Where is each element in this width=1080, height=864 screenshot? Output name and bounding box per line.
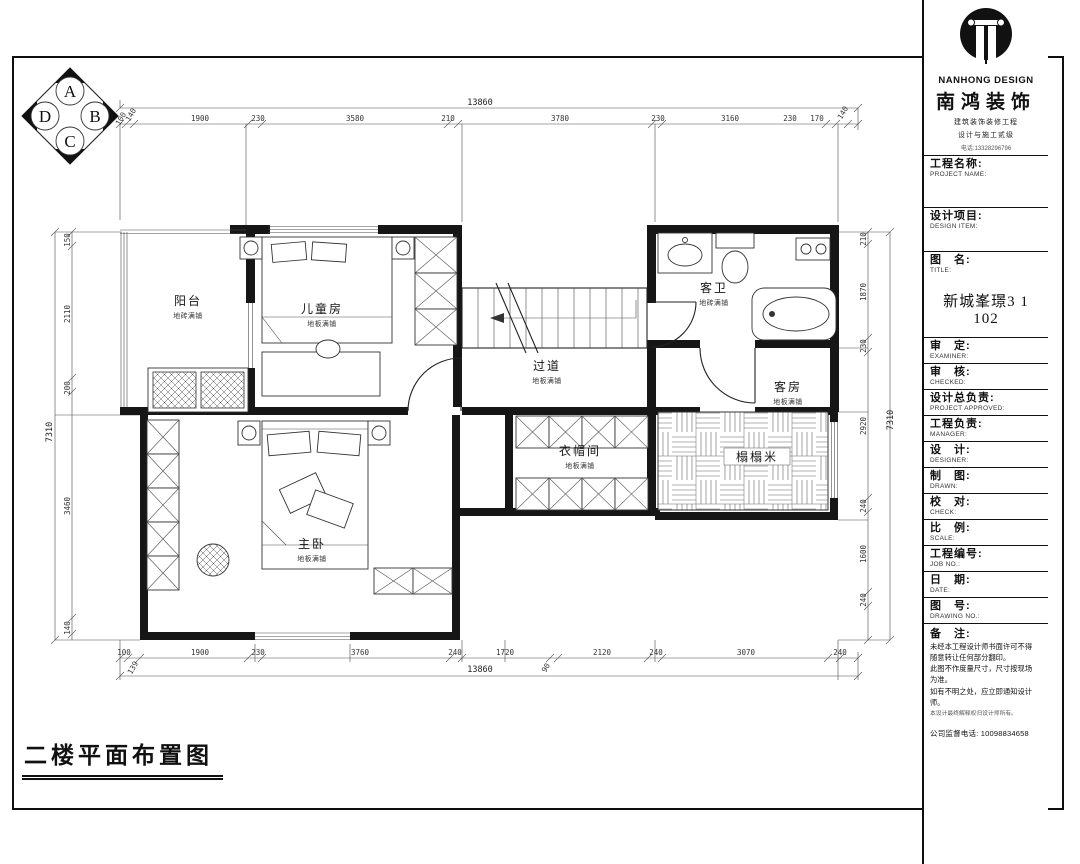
- field-label-en: CHECKED:: [930, 379, 1042, 386]
- dim-value: 210: [859, 232, 868, 246]
- dim-overall: 13860: [467, 665, 493, 675]
- field-drawing-title: 图 名: TITLE: 新城峯璟3 1 102: [924, 252, 1048, 338]
- dim-overall: 7310: [886, 410, 896, 430]
- column-logo-icon: [955, 6, 1017, 68]
- room-label-tatami: 榻榻米: [736, 450, 778, 464]
- dim-value: 240: [649, 648, 663, 657]
- dim-value: 3160: [721, 114, 740, 123]
- field-design-item: 设计项目: DESIGN ITEM:: [924, 208, 1048, 252]
- dim-value: 2120: [593, 648, 612, 657]
- field-label-en: DRAWN:: [930, 483, 1042, 490]
- dim-value: 2110: [63, 304, 72, 323]
- dim-value: 240: [859, 593, 868, 607]
- dim-value: 210: [441, 114, 455, 123]
- title-block: NANHONG DESIGN 南鸿装饰 建筑装饰装修工程 设计与施工贰级 电话:…: [922, 0, 1048, 864]
- brand-name-cn: 南鸿装饰: [924, 87, 1048, 114]
- compass-letter-d: D: [39, 107, 51, 126]
- field-label-cn: 审 定:: [930, 341, 1042, 353]
- room-label-cloakroom: 衣帽间: [559, 443, 601, 458]
- field-label-en: JOB NO.:: [930, 561, 1042, 568]
- project-title-value: 新城峯璟3 1 102: [930, 290, 1042, 328]
- field-label-cn: 工程名称:: [930, 159, 1042, 171]
- dimension-text-right: 210 1870 230 2920 240 1600 240 7310: [859, 232, 896, 607]
- dim-value: 200: [63, 381, 72, 395]
- brand-name-en: NANHONG DESIGN: [924, 75, 1048, 86]
- field-label-cn: 图 名:: [930, 255, 1042, 267]
- room-finish-guest-room: 地板满铺: [773, 397, 802, 406]
- room-finish-hallway: 地板满铺: [532, 376, 561, 385]
- field-scale: 比 例: SCALE:: [924, 520, 1048, 546]
- elevation-symbol: A B C D: [22, 68, 118, 164]
- note-line: 如有不明之处，应立即通知设计: [930, 686, 1042, 697]
- note-line: 此图不作度量尺寸，尺寸按现场: [930, 663, 1042, 674]
- compass-letter-b: B: [89, 107, 100, 126]
- dim-value: 150: [63, 233, 72, 247]
- brand-phone: 电话:13328296796: [924, 143, 1048, 152]
- field-label-en: DRAWING NO.:: [930, 613, 1042, 620]
- dimension-text-top: 100 140 1900 230 3580 210 3780 230 3160 …: [114, 98, 851, 127]
- door-guest-room: [700, 348, 755, 403]
- dim-value: 139: [126, 660, 141, 676]
- drawing-sheet: 100 140 1900 230 3580 210 3780 230 3160 …: [0, 0, 1080, 864]
- note-line-fine-print: 本设计最终解释权归设计师所有。: [930, 710, 1042, 719]
- field-label-cn: 图 号:: [930, 601, 1042, 613]
- field-checked: 审 核: CHECKED:: [924, 364, 1048, 390]
- field-date: 日 期: DATE:: [924, 572, 1048, 598]
- field-project-name: 工程名称: PROJECT NAME:: [924, 156, 1048, 208]
- compass-letter-c: C: [64, 132, 75, 151]
- field-label-en: SCALE:: [930, 535, 1042, 542]
- dim-overall: 7310: [45, 422, 55, 442]
- field-drawing-no: 图 号: DRAWING NO.:: [924, 598, 1048, 624]
- room-label-balcony: 阳台: [174, 293, 202, 308]
- field-label-en: PROJECT NAME:: [930, 171, 1042, 178]
- dim-value: 1870: [859, 282, 868, 301]
- staircase: [462, 283, 647, 353]
- dim-value: 240: [833, 648, 847, 657]
- floor-plan: 100 140 1900 230 3580 210 3780 230 3160 …: [0, 0, 930, 820]
- field-drawn: 制 图: DRAWN:: [924, 468, 1048, 494]
- dimension-text-left: 150 2110 200 3460 140 7310: [45, 233, 72, 635]
- dim-value: 140: [124, 106, 139, 123]
- dim-value: 170: [810, 114, 824, 123]
- bathroom-fixtures: [658, 233, 836, 340]
- dim-value: 1600: [859, 544, 868, 563]
- dim-value: 230: [859, 339, 868, 353]
- room-label-guest-room: 客房: [774, 379, 802, 394]
- field-label-en: MANAGER:: [930, 431, 1042, 438]
- dim-value: 140: [836, 104, 851, 121]
- balcony-fixtures: [148, 368, 248, 412]
- dim-value: 230: [651, 114, 665, 123]
- dim-value: 1720: [496, 648, 515, 657]
- dim-value: 3760: [351, 648, 370, 657]
- field-label-cn: 比 例:: [930, 523, 1042, 535]
- stair-direction-arrow: [490, 313, 504, 323]
- field-project-approved: 设计总负责: PROJECT APPROVED:: [924, 390, 1048, 416]
- dim-value: 3070: [737, 648, 756, 657]
- note-line: 为准。: [930, 674, 1042, 685]
- field-label-cn: 日 期:: [930, 575, 1042, 587]
- notes-label: 备 注:: [930, 629, 1042, 641]
- field-label-en: DESIGNER:: [930, 457, 1042, 464]
- dimension-text-bottom: 100 139 1900 230 3760 240 1720 90 2120 2…: [117, 648, 847, 676]
- note-line: 未经本工程设计师书面许可不得: [930, 641, 1042, 652]
- field-job-no: 工程编号: JOB NO.:: [924, 546, 1048, 572]
- field-designer: 设 计: DESIGNER:: [924, 442, 1048, 468]
- field-label-en: CHECK:: [930, 509, 1042, 516]
- field-label-cn: 设 计:: [930, 445, 1042, 457]
- master-room-furniture: [147, 420, 452, 594]
- dim-value: 3460: [63, 496, 72, 515]
- dim-value: 1900: [191, 648, 210, 657]
- field-label-cn: 校 对:: [930, 497, 1042, 509]
- field-label-cn: 工程编号:: [930, 549, 1042, 561]
- company-logo-section: NANHONG DESIGN 南鸿装饰 建筑装饰装修工程 设计与施工贰级 电话:…: [924, 0, 1048, 156]
- field-label-cn: 设计总负责:: [930, 393, 1042, 405]
- field-label-cn: 工程负责:: [930, 419, 1042, 431]
- note-line: 随意转让任何部分翻印。: [930, 652, 1042, 663]
- brand-tagline-2: 设计与施工贰级: [924, 130, 1048, 140]
- dim-value: 3580: [346, 114, 365, 123]
- notes-section: 备 注: 未经本工程设计师书面许可不得 随意转让任何部分翻印。 此图不作度量尺寸…: [924, 624, 1048, 864]
- field-manager: 工程负责: MANAGER:: [924, 416, 1048, 442]
- room-finish-master-bedroom: 地板满铺: [297, 554, 326, 563]
- room-label-child-room: 儿童房: [301, 301, 343, 316]
- dim-value: 230: [251, 114, 265, 123]
- brand-tagline-1: 建筑装饰装修工程: [924, 117, 1048, 127]
- field-check: 校 对: CHECK:: [924, 494, 1048, 520]
- dim-value: 140: [63, 621, 72, 635]
- field-label-cn: 制 图:: [930, 471, 1042, 483]
- dim-value: 240: [448, 648, 462, 657]
- dim-value: 2920: [859, 416, 868, 435]
- room-label-master-bedroom: 主卧: [298, 537, 326, 551]
- room-finish-balcony: 地砖满铺: [173, 311, 202, 320]
- drawing-title: 二楼平面布置图: [22, 736, 223, 780]
- dim-value: 90: [540, 661, 553, 674]
- dim-value: 3780: [551, 114, 570, 123]
- field-label-en: DESIGN ITEM:: [930, 223, 1042, 230]
- supervision-phone: 公司监督电话: 10098834658: [930, 728, 1042, 739]
- dim-value: 230: [783, 114, 797, 123]
- dim-value: 1900: [191, 114, 210, 123]
- room-finish-cloakroom: 地板满铺: [565, 461, 594, 470]
- dim-value: 230: [251, 648, 265, 657]
- field-label-en: DATE:: [930, 587, 1042, 594]
- dim-value: 240: [859, 499, 868, 513]
- dim-value: 100: [117, 648, 131, 657]
- field-label-en: PROJECT APPROVED:: [930, 405, 1042, 412]
- field-examiner: 审 定: EXAMINER:: [924, 338, 1048, 364]
- room-finish-guest-bath: 地砖满铺: [699, 298, 728, 307]
- room-label-hallway: 过道: [533, 359, 561, 373]
- room-label-guest-bath: 客卫: [700, 280, 728, 295]
- field-label-en: EXAMINER:: [930, 353, 1042, 360]
- field-label-cn: 审 核:: [930, 367, 1042, 379]
- note-line: 师。: [930, 697, 1042, 708]
- compass-letter-a: A: [64, 82, 77, 101]
- field-label-cn: 设计项目:: [930, 211, 1042, 223]
- dim-overall: 13860: [467, 98, 493, 108]
- field-label-en: TITLE:: [930, 267, 1042, 274]
- room-finish-child-room: 地板满铺: [307, 319, 336, 328]
